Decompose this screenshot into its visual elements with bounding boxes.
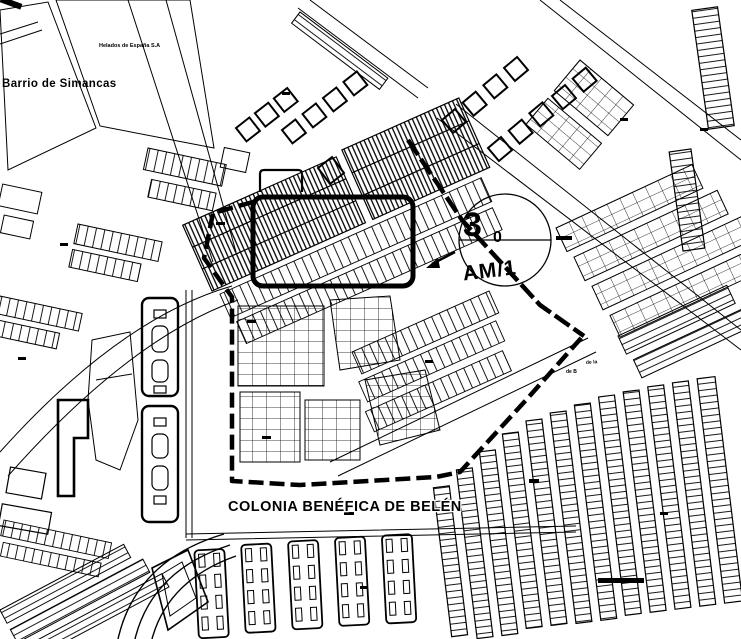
district-label: Barrio de Simancas bbox=[2, 78, 117, 90]
marker-sub: 0 bbox=[493, 229, 502, 246]
left-blocks bbox=[0, 295, 138, 578]
street-micro-label-2: de B bbox=[566, 369, 577, 375]
bottomright-slab-field bbox=[424, 377, 741, 639]
marker-code: AM/1 bbox=[461, 256, 518, 285]
planning-map-screenshot: 3 0 AM/1 bbox=[0, 0, 741, 639]
street-micro-label-1: de la bbox=[586, 359, 598, 366]
bottom-slab-row bbox=[194, 534, 417, 638]
factory-label: Helados de España S.A bbox=[99, 43, 160, 49]
left-slab-buildings bbox=[142, 290, 192, 538]
marker-number: 3 bbox=[463, 206, 482, 244]
city-map: 3 0 AM/1 bbox=[0, 0, 741, 639]
colonia-title: COLONIA BENÉFICA DE BELÉN bbox=[228, 498, 462, 515]
